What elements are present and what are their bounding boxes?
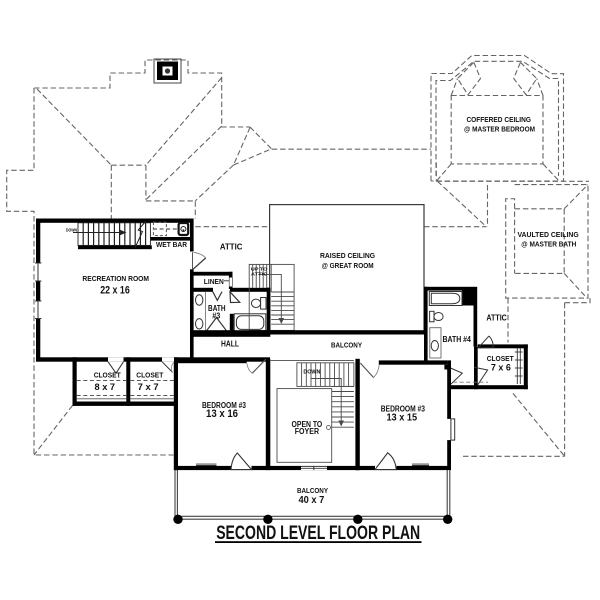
svg-text:40 x 7: 40 x 7 (299, 495, 325, 506)
svg-text:VAULTED CEILING: VAULTED CEILING (517, 230, 579, 239)
svg-text:22 x 16: 22 x 16 (100, 284, 130, 296)
svg-text:@ GREAT ROOM: @ GREAT ROOM (322, 261, 374, 270)
svg-text:7 x 7: 7 x 7 (138, 381, 159, 392)
svg-text:BATH #4: BATH #4 (442, 335, 471, 344)
svg-text:HALL: HALL (221, 340, 239, 349)
svg-text:13 x 15: 13 x 15 (386, 412, 417, 423)
svg-text:8 x 7: 8 x 7 (95, 381, 116, 392)
svg-text:SECOND LEVEL FLOOR PLAN: SECOND LEVEL FLOOR PLAN (216, 522, 420, 544)
svg-text:@ MASTER BEDROOM: @ MASTER BEDROOM (464, 124, 535, 133)
svg-text:ATTIC: ATTIC (220, 243, 243, 252)
svg-text:COFFERED CEILING: COFFERED CEILING (466, 115, 531, 124)
svg-text:BALCONY: BALCONY (297, 486, 328, 495)
svg-text:CLOSET: CLOSET (136, 371, 163, 380)
svg-text:CLOSET: CLOSET (487, 354, 514, 363)
svg-text:BALCONY: BALCONY (331, 341, 362, 350)
svg-text:@ MASTER BATH: @ MASTER BATH (521, 240, 576, 249)
svg-text:13 x 16: 13 x 16 (206, 408, 238, 420)
svg-text:7 x 6: 7 x 6 (491, 363, 511, 373)
svg-text:DOWN: DOWN (303, 370, 320, 376)
svg-text:RAISED CEILING: RAISED CEILING (320, 251, 375, 260)
svg-text:DOWN: DOWN (66, 227, 78, 232)
svg-text:ATTIC: ATTIC (251, 272, 268, 278)
svg-text:LINEN: LINEN (204, 277, 224, 286)
svg-text:FOYER: FOYER (295, 427, 320, 436)
svg-text:WET BAR: WET BAR (156, 240, 187, 249)
svg-text:CLOSET: CLOSET (94, 371, 121, 380)
svg-text:#3: #3 (212, 310, 220, 320)
svg-text:ATTIC: ATTIC (486, 313, 507, 322)
svg-text:RECREATION ROOM: RECREATION ROOM (82, 274, 149, 283)
